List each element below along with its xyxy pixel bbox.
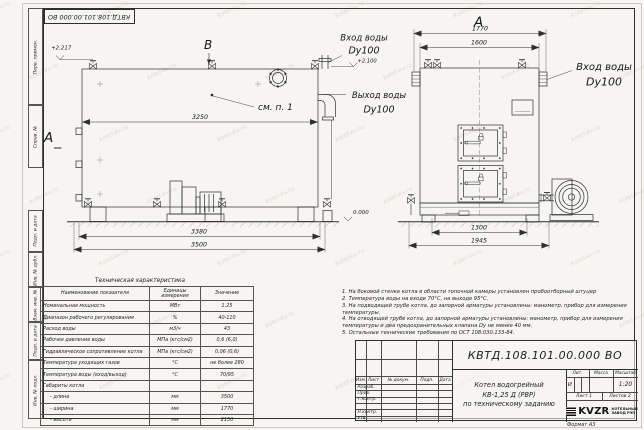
watermark-text: kotel-kv.ru <box>0 371 12 391</box>
mass-header: Масса <box>589 369 613 377</box>
scale-value: 1:20 <box>613 377 638 392</box>
spec-row: Температура уходящих газов°Сне более 280 <box>41 357 254 368</box>
spec-cell: - ширина <box>41 403 150 414</box>
spec-cell: - длина <box>41 392 150 403</box>
spec-cell <box>201 380 254 391</box>
company-logo-cell: KVZR КОТЕЛЬНЫЙ ЗАВОД РЭП <box>566 400 638 422</box>
spec-cell: МПа (кгс/см2) <box>150 346 201 357</box>
spec-cell: 0,06 (0,6) <box>201 346 254 357</box>
spec-cell: МВт <box>150 301 201 312</box>
spec-table-body: Номинальная мощностьМВт1,25Диапазон рабо… <box>41 301 254 426</box>
spec-cell: мм <box>150 414 201 425</box>
spec-cell: 43 <box>201 323 254 334</box>
note-line: 3. На подводящей трубе котла, до запорно… <box>342 303 637 317</box>
lit-header: Лит. <box>566 369 589 377</box>
rev-header-podp: Подп. <box>416 376 438 384</box>
role-utv: Утв. <box>356 416 383 422</box>
product-line-2: КВ-1,25 Д (РВР) <box>482 391 535 401</box>
spec-cell: 40-110 <box>201 312 254 323</box>
doc-number: КВТД.108.101.00.000 ВО <box>452 341 638 369</box>
kvzr-logo-icon <box>566 407 576 416</box>
spec-cell: мм <box>150 392 201 403</box>
company-name: КОТЕЛЬНЫЙ ЗАВОД РЭП <box>611 407 637 416</box>
rev-header-data: Дата <box>438 376 452 384</box>
spec-cell: Рабочее давление воды <box>41 335 150 346</box>
spec-row: - длинамм3500 <box>41 392 254 403</box>
watermark-text: kotel-kv.ru <box>0 0 12 20</box>
sheet-cell: Лист 1 <box>566 392 602 400</box>
spec-cell: Диапазон рабочего регулирования <box>41 312 150 323</box>
spec-cell: - высота <box>41 414 150 425</box>
corner-stamp-text: КВТД.108.101.00.000 ВО <box>48 13 130 21</box>
spec-cell <box>150 380 201 391</box>
rev-header-izm: Изм. <box>356 376 366 384</box>
spec-header-name: Наименование показателя <box>41 287 150 301</box>
spec-header-value: Значение <box>201 287 254 301</box>
watermark-text: kotel-kv.ru <box>0 123 12 143</box>
strip-cell-perv-primen: Перв. примен. <box>28 8 43 105</box>
spec-cell: 0,6 (6,0) <box>201 335 254 346</box>
strip-label: Подп. и дата <box>33 325 38 356</box>
spec-table-title: Техническая характеристика <box>40 278 240 284</box>
strip-label: Инв. № подл. <box>33 374 38 406</box>
strip-label: Перв. примен. <box>33 39 38 74</box>
spec-table: Техническая характеристика Наименование … <box>40 278 240 426</box>
title-block: Изм. Лист № докум. Подп. Дата Разраб. Пр… <box>355 340 637 421</box>
spec-header-row: Наименование показателя Единицы измерени… <box>41 287 254 301</box>
spec-cell: Температура уходящих газов <box>41 357 150 368</box>
kvzr-logo-text: KVZR <box>578 406 609 417</box>
product-line-3: по техническому заданию <box>463 400 555 410</box>
spec-row: Гидравлическое сопротивление котлаМПа (к… <box>41 346 254 357</box>
spec-cell: Температура воды (вход/выход) <box>41 369 150 380</box>
spec-row: Диапазон рабочего регулирования%40-110 <box>41 312 254 323</box>
lit-value: И <box>566 377 574 392</box>
spec-row: - высотамм2150 <box>41 414 254 425</box>
strip-label: Справ. № <box>33 125 38 147</box>
spec-cell: °С <box>150 357 201 368</box>
spec-cell: Габариты котла <box>41 380 150 391</box>
spec-cell: не более 280 <box>201 357 254 368</box>
spec-cell: МПа (кгс/см2) <box>150 335 201 346</box>
spec-cell: 70/95 <box>201 369 254 380</box>
strip-label: Подп. и дата <box>33 215 38 246</box>
corner-stamp: КВТД.108.101.00.000 ВО <box>44 9 135 24</box>
rev-header-dokum: № докум. <box>381 376 416 384</box>
company-line-2: ЗАВОД РЭП <box>611 411 637 415</box>
spec-cell: Расход воды <box>41 323 150 334</box>
strip-label: Взам. инв. № <box>33 289 38 320</box>
spec-cell: °С <box>150 369 201 380</box>
spec-row: Температура воды (вход/выход)°С70/95 <box>41 369 254 380</box>
spec-row: Рабочее давление водыМПа (кгс/см2)0,6 (6… <box>41 335 254 346</box>
scale-header: Масштаб <box>613 369 638 377</box>
rev-header-list: Лист <box>366 376 381 384</box>
spec-cell: Номинальная мощность <box>41 301 150 312</box>
spec-cell: 2150 <box>201 414 254 425</box>
spec-cell: Гидравлическое сопротивление котла <box>41 346 150 357</box>
strip-cell-sprav-no: Справ. № <box>28 105 43 168</box>
strip-label: Инв. № дубл. <box>33 254 38 285</box>
watermark-text: kotel-kv.ru <box>0 247 12 267</box>
spec-cell: мм <box>150 403 201 414</box>
spec-cell: 1770 <box>201 403 254 414</box>
spec-row: Расход водым3/ч43 <box>41 323 254 334</box>
spec-cell: 3500 <box>201 392 254 403</box>
strip-cell-podp-data-1: Подп. и дата <box>28 210 43 252</box>
spec-cell: 1,25 <box>201 301 254 312</box>
spec-cell: м3/ч <box>150 323 201 334</box>
product-title: Котел водогрейный КВ-1,25 Д (РВР) по тех… <box>453 370 565 421</box>
product-line-1: Котел водогрейный <box>474 381 543 391</box>
note-line: 4. На отводящей трубе котла, до запорной… <box>342 316 637 330</box>
note-line: 2. Температура воды на входе 70°С, на вы… <box>342 296 637 303</box>
spec-row: - ширинамм1770 <box>41 403 254 414</box>
drawing-sheet: kotel-kv.rukotel-kv.rukotel-kv.rukotel-k… <box>0 0 644 430</box>
spec-header-unit: Единицы измерения <box>150 287 201 301</box>
format-note: Формат А3 <box>567 422 595 428</box>
notes-block: 1. На боковой стенке котла в области топ… <box>342 289 637 337</box>
spec-cell: % <box>150 312 201 323</box>
spec-row: Габариты котла <box>41 380 254 391</box>
note-line: 1. На боковой стенке котла в области топ… <box>342 289 637 296</box>
sheets-cell: Листов 2 <box>602 392 638 400</box>
note-line: 5. Остальные технические требования по О… <box>342 330 637 337</box>
spec-row: Номинальная мощностьМВт1,25 <box>41 301 254 312</box>
